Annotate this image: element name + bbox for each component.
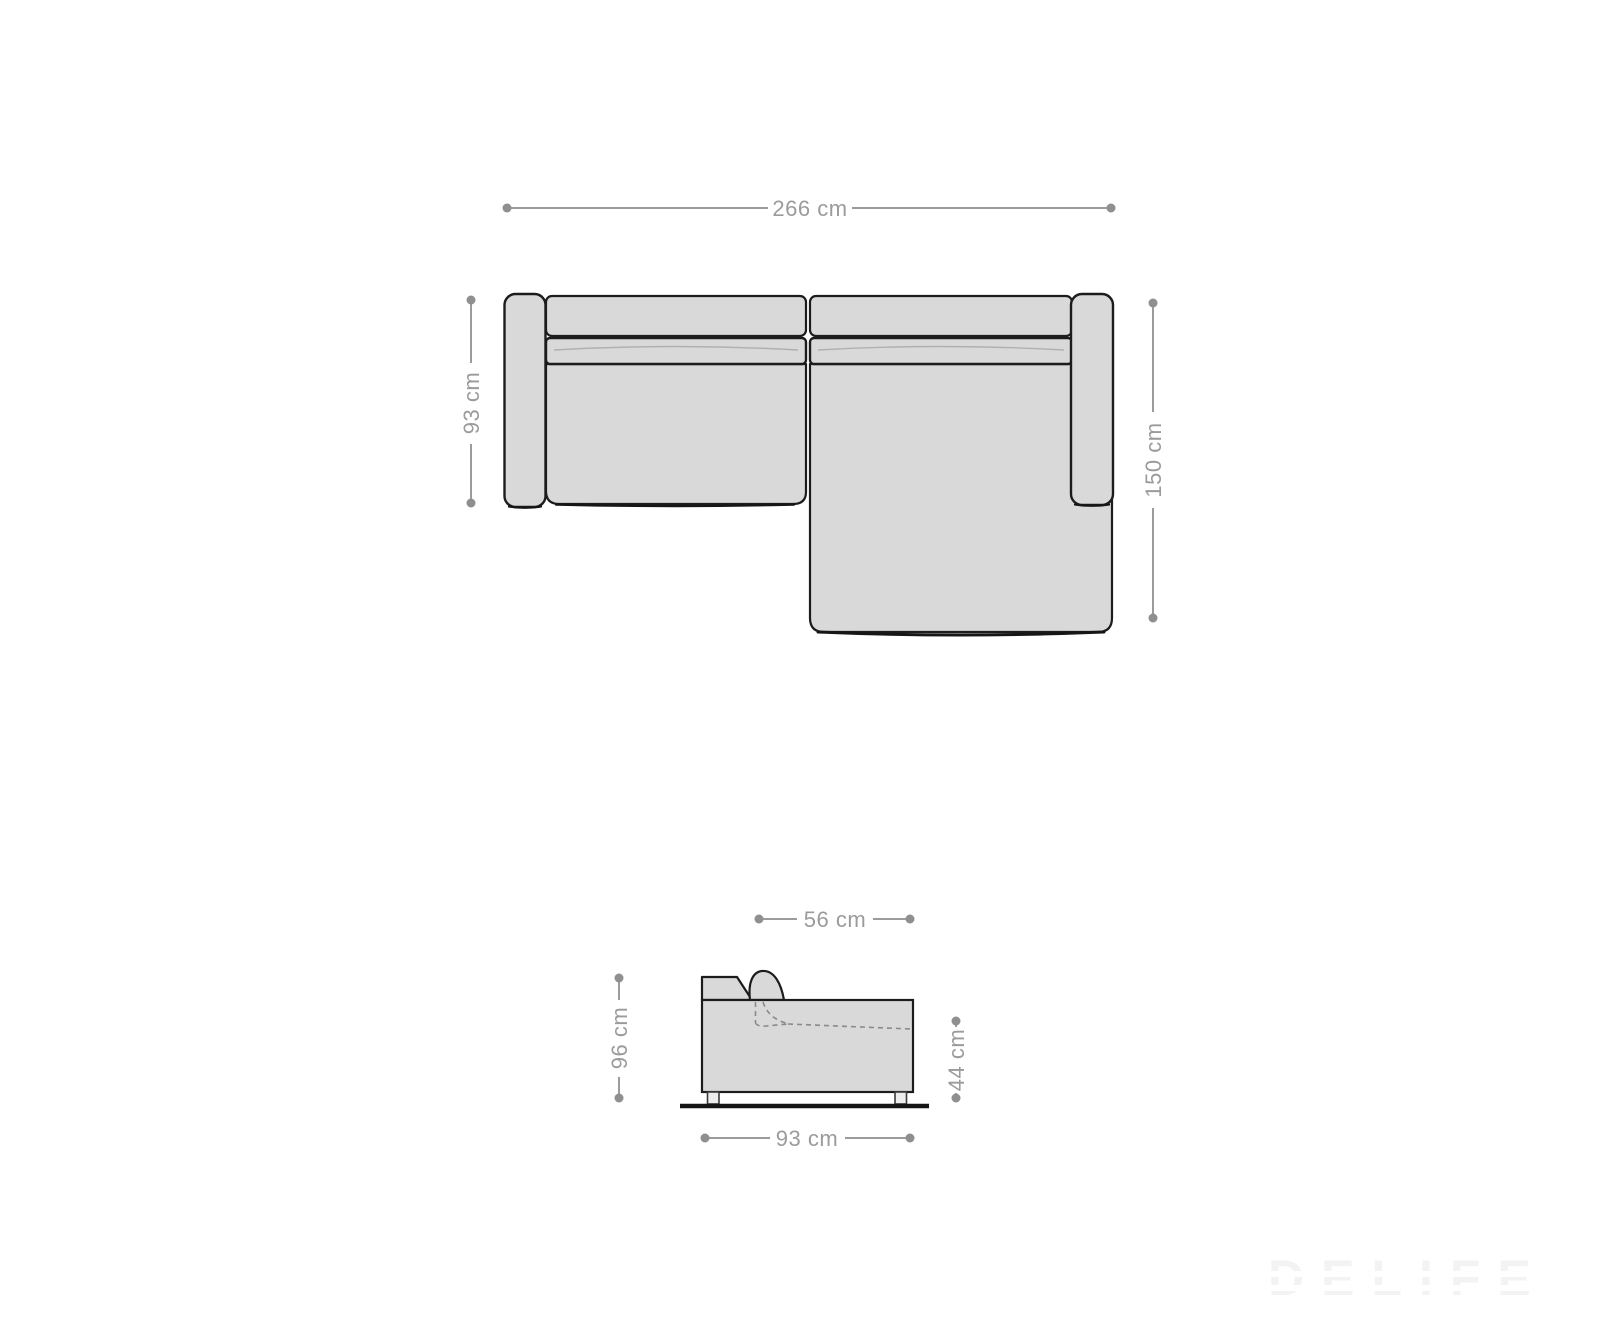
delife-watermark-logo: DELIFE	[1268, 1256, 1568, 1300]
sofa-dimension-diagram: 266 cm 93 cm 150 cm	[0, 0, 1600, 1333]
top-view-armrest-left	[505, 294, 546, 507]
dim-dot	[1107, 204, 1116, 213]
watermark-stripe	[1264, 1271, 1574, 1277]
dim-dot	[952, 1017, 961, 1026]
side-view-leg-right	[895, 1092, 907, 1104]
dimension-side-seat-depth: 56 cm	[755, 907, 915, 932]
top-view-backrest-edge-left	[546, 338, 806, 364]
dim-dot	[503, 204, 512, 213]
dim-dot	[467, 499, 476, 508]
dimension-label-seat-depth: 56 cm	[804, 907, 866, 932]
dimension-label-height: 96 cm	[607, 1007, 632, 1069]
dim-dot	[1149, 614, 1158, 623]
watermark-stripe	[1264, 1285, 1574, 1291]
side-view-backrest	[702, 977, 752, 1000]
side-view-body	[702, 1000, 913, 1092]
dim-dot	[906, 1134, 915, 1143]
dim-dot	[906, 915, 915, 924]
top-view-chaise	[810, 364, 1112, 632]
dimension-top-width: 266 cm	[503, 196, 1116, 221]
dim-dot	[615, 1094, 624, 1103]
top-view-back-cushion-right	[810, 296, 1072, 336]
top-view-armrest-left-shadow	[509, 507, 541, 508]
dim-dot	[615, 974, 624, 983]
dimension-label-total-width: 266 cm	[772, 196, 847, 221]
dimension-label-depth: 93 cm	[776, 1126, 838, 1151]
top-view-armrest-right-shadow	[1075, 505, 1109, 506]
dim-dot	[952, 1094, 961, 1103]
top-view-back-cushion-left	[546, 296, 806, 336]
dimension-top-right-depth: 150 cm	[1141, 299, 1166, 623]
diagram-drawing: 266 cm 93 cm 150 cm	[0, 0, 1600, 1333]
dim-dot	[701, 1134, 710, 1143]
dimension-side-height: 96 cm	[607, 974, 632, 1103]
dimension-label-left-depth: 93 cm	[459, 372, 484, 434]
dim-dot	[467, 296, 476, 305]
side-view-back-cushion	[750, 971, 785, 1000]
watermark-text: DELIFE	[1268, 1250, 1548, 1306]
dim-dot	[755, 915, 764, 924]
sofa-side-view	[680, 971, 929, 1106]
top-view-backrest-edge-right	[810, 338, 1072, 364]
dim-dot	[1149, 299, 1158, 308]
sofa-top-view	[505, 294, 1114, 635]
dimension-top-left-depth: 93 cm	[459, 296, 484, 508]
dimension-side-depth: 93 cm	[701, 1126, 915, 1151]
dimension-side-seat-height: 44 cm	[944, 1017, 969, 1103]
side-view-leg-left	[708, 1092, 720, 1104]
top-view-left-seat	[546, 364, 806, 504]
dimension-label-right-depth: 150 cm	[1141, 422, 1166, 497]
dimension-label-seat-height: 44 cm	[944, 1029, 969, 1091]
top-view-armrest-right	[1071, 294, 1113, 505]
